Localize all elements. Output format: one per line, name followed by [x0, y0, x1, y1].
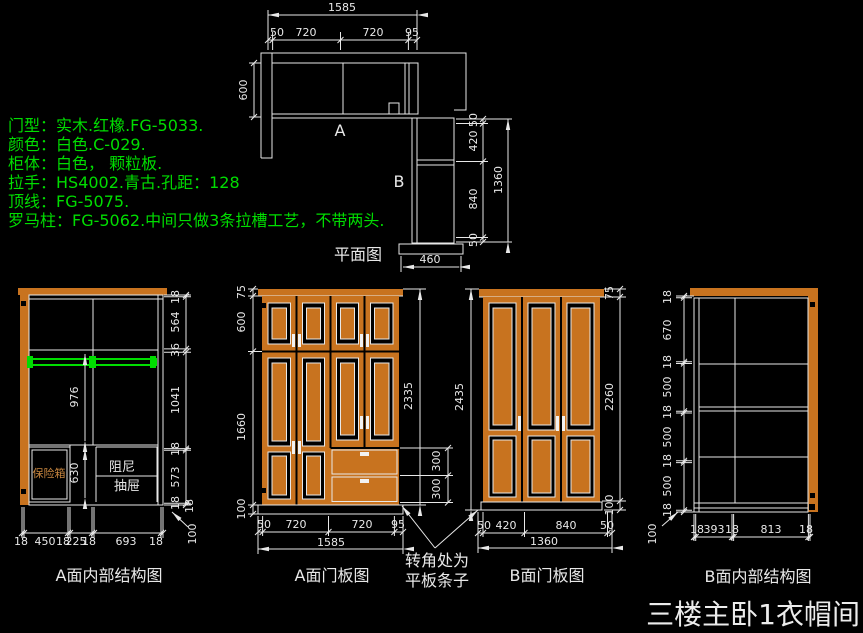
plan-rdim-50b: 50 — [467, 233, 480, 247]
plan-section-b-label: B — [394, 172, 405, 191]
v1-rdim-18a: 18 — [169, 290, 182, 304]
v3-bdim-840: 840 — [556, 519, 577, 532]
plan-rdim-overall: 1360 — [492, 166, 505, 194]
view-b-doors-linework — [465, 286, 626, 553]
cad-drawing-canvas: 1585 50 720 720 95 600 50 420 840 50 136… — [0, 0, 863, 633]
v4-ldim-18b: 18 — [661, 355, 674, 369]
plan-rdim-50a: 50 — [467, 113, 480, 127]
spec-note-door: 门型：实木.红橡.FG-5033. — [8, 116, 203, 135]
v3-rdim-2260: 2260 — [603, 383, 616, 411]
cad-drawing: 1585 50 720 720 95 600 50 420 840 50 136… — [0, 0, 863, 633]
view-a-doors-linework — [248, 286, 453, 554]
v2-ldim-100: 100 — [235, 499, 248, 520]
v1-rdim-36: 36 — [169, 343, 182, 357]
v1-bdim-693: 693 — [116, 535, 137, 548]
v1-rdim-18c: 18 — [169, 496, 182, 510]
view-a-internal-linework — [18, 288, 191, 538]
v4-ldim-500b: 500 — [661, 427, 674, 448]
v1-drawer-label-2: 抽屉 — [114, 479, 140, 494]
v4-base-height: 100 — [646, 524, 659, 545]
v4-ldim-500a: 500 — [661, 377, 674, 398]
v1-bdim-18c: 18 — [82, 535, 96, 548]
v4-ldim-18c: 18 — [661, 405, 674, 419]
v1-safe-label: 保险箱 — [33, 466, 66, 480]
view-b-internal: 18 670 18 500 18 500 18 500 18 18 393 18… — [646, 288, 818, 586]
spec-note-handle: 拉手：HS4002.青古.孔距：128 — [8, 173, 240, 192]
v4-ldim-18e: 18 — [661, 503, 674, 517]
v2-bdim-overall: 1585 — [317, 536, 345, 549]
v4-ldim-18a: 18 — [661, 290, 674, 304]
plan-dim-50: 50 — [270, 26, 284, 39]
v2-ldim-600: 600 — [235, 312, 248, 333]
v1-bdim-18d: 18 — [149, 535, 163, 548]
v1-drawer-label-1: 阻尼 — [109, 460, 135, 475]
v2-rdim-2335: 2335 — [402, 382, 415, 410]
v4-bdim-18c: 18 — [799, 523, 813, 536]
v4-bdim-18a: 18 — [690, 523, 704, 536]
plan-section-a-label: A — [335, 121, 346, 140]
view-b-internal-title: B面内部结构图 — [705, 567, 812, 586]
v2-bdim-720b: 720 — [352, 518, 373, 531]
view-b-doors-title: B面门板图 — [510, 566, 585, 585]
v2-bdim-720a: 720 — [286, 518, 307, 531]
v4-ldim-18d: 18 — [661, 454, 674, 468]
view-b-internal-linework — [662, 288, 818, 541]
v1-bdim-450: 450 — [35, 535, 56, 548]
v3-bdim-50a: 50 — [477, 519, 491, 532]
v4-bdim-393: 393 — [704, 523, 725, 536]
plan-rdim-420: 420 — [467, 131, 480, 152]
v1-base-panel: 18 — [183, 499, 196, 513]
plan-dim-overall: 1585 — [328, 1, 356, 14]
corner-note-line1: 转角处为 — [405, 551, 469, 570]
v3-bdim-420: 420 — [496, 519, 517, 532]
v2-bdim-95: 95 — [391, 518, 405, 531]
v1-rdim-573: 573 — [169, 467, 182, 488]
v1-base-height: 100 — [186, 524, 199, 545]
plan-rdim-840: 840 — [467, 189, 480, 210]
view-a-doors: 75 600 1660 100 2335 300 300 50 720 720 … — [235, 285, 453, 585]
spec-note-crown: 顶线：FG-5075. — [8, 192, 129, 211]
spec-notes: 门型：实木.红橡.FG-5033. 颜色：白色.C-029. 柜体：白色， 颗粒… — [8, 116, 384, 230]
v3-bdim-50b: 50 — [600, 519, 614, 532]
view-a-internal: 18 564 36 1041 18 573 18 976 630 保险箱 阻尼 … — [14, 288, 199, 585]
v1-rdim-564: 564 — [169, 312, 182, 333]
v3-bdim-overall: 1360 — [530, 535, 558, 548]
corner-note: 转角处为 平板条子 — [402, 506, 478, 590]
plan-view-label: 平面图 — [334, 245, 382, 264]
v4-bdim-18b: 18 — [725, 523, 739, 536]
v3-ldim-2435: 2435 — [453, 383, 466, 411]
plan-dim-460: 460 — [420, 253, 441, 266]
view-a-doors-title: A面门板图 — [295, 566, 370, 585]
plan-dim-depth: 600 — [237, 80, 250, 101]
v3-rdim-100: 100 — [603, 495, 616, 516]
v4-ldim-500c: 500 — [661, 476, 674, 497]
v4-bdim-813: 813 — [761, 523, 782, 536]
plan-dim-720b: 720 — [363, 26, 384, 39]
v2-bdim-50: 50 — [257, 518, 271, 531]
v4-ldim-670: 670 — [661, 320, 674, 341]
v2-ldim-1660: 1660 — [235, 413, 248, 441]
v1-bdim-18a: 18 — [14, 535, 28, 548]
v1-rdim-18b: 18 — [169, 442, 182, 456]
v2-ldim-75: 75 — [235, 285, 248, 299]
v1-dim-630: 630 — [68, 463, 81, 484]
plan-dim-95: 95 — [405, 26, 419, 39]
spec-note-column: 罗马柱：FG-5062.中间只做3条拉槽工艺，不带两头. — [8, 211, 384, 230]
spec-note-color: 颜色：白色.C-029. — [8, 135, 146, 154]
v2-dim-300b: 300 — [430, 479, 443, 500]
view-b-doors: 2435 75 2260 100 50 420 840 50 1360 B面门板… — [453, 286, 626, 585]
view-a-internal-title: A面内部结构图 — [56, 566, 163, 585]
plan-dim-720a: 720 — [296, 26, 317, 39]
v1-dim-976: 976 — [68, 387, 81, 408]
v3-rdim-75: 75 — [603, 286, 616, 300]
v1-rdim-1041: 1041 — [169, 386, 182, 414]
drawing-title: 三楼主卧1衣帽间 — [646, 598, 860, 631]
spec-note-body: 柜体：白色， 颗粒板. — [8, 154, 162, 173]
v2-dim-300a: 300 — [430, 451, 443, 472]
corner-note-line2: 平板条子 — [405, 571, 469, 590]
plan-view: 1585 50 720 720 95 600 50 420 840 50 136… — [237, 1, 512, 272]
